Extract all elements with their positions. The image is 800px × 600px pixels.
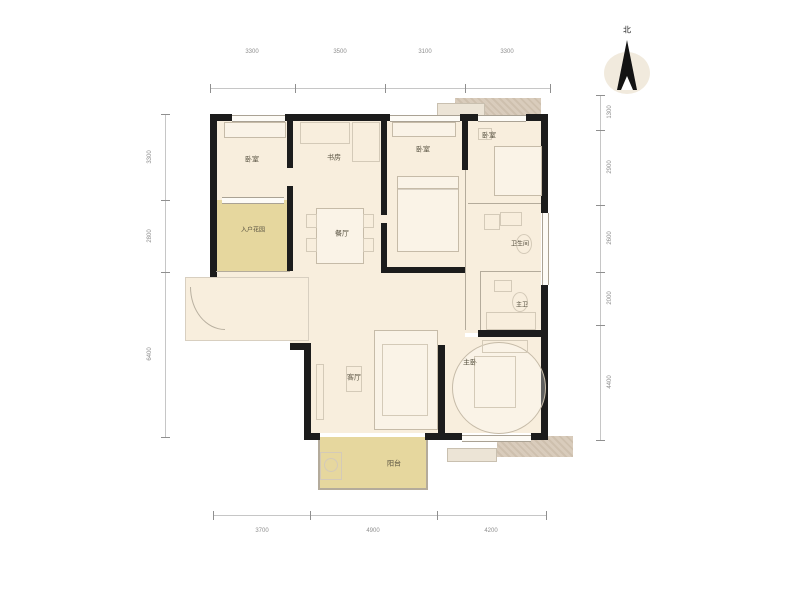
dimension-tick: [465, 84, 466, 93]
dimension-tick: [210, 84, 211, 93]
partition: [468, 203, 541, 204]
dimension-tick: [596, 272, 605, 273]
dimension-tick: [385, 84, 386, 93]
desk-icon: [352, 122, 380, 162]
partition: [465, 170, 466, 330]
wardrobe-icon: [224, 122, 286, 138]
wall-segment: [304, 433, 320, 440]
room-label-balcony: 阳台: [387, 461, 401, 468]
dimension-value: 2600: [607, 231, 613, 244]
wall-segment: [438, 345, 445, 440]
north-label: 北: [623, 25, 631, 36]
dimension-tick: [596, 325, 605, 326]
wall-segment: [285, 114, 390, 121]
partition: [480, 271, 541, 272]
room-label-bedroom: 卧室: [416, 147, 430, 154]
wall-segment: [287, 121, 293, 168]
tv-cabinet-icon: [316, 364, 324, 420]
room-label-bedroom: 卧室: [245, 157, 259, 164]
dimension-value: 2800: [147, 229, 153, 242]
dimension-line-right: [600, 95, 601, 440]
chair-icon: [363, 238, 374, 252]
dimension-tick: [596, 130, 605, 131]
north-arrow-notch: [621, 76, 633, 90]
room-label-study: 书房: [327, 155, 341, 162]
entry-garden-area: [216, 200, 290, 272]
room-label-living: 客厅: [347, 375, 361, 382]
room-label-entry-garden: 入户花园: [241, 228, 265, 235]
dimension-value: 3300: [500, 49, 513, 55]
window: [390, 115, 460, 122]
dimension-tick: [596, 95, 605, 96]
bed-icon: [494, 146, 542, 196]
room-label-master-bedroom: 主卧: [463, 360, 477, 367]
chair-icon: [306, 238, 317, 252]
window: [222, 197, 284, 204]
window: [478, 115, 526, 122]
sink-icon: [494, 280, 512, 292]
dimension-value: 4400: [607, 375, 613, 388]
dimension-tick: [310, 511, 311, 520]
wall-segment: [381, 267, 465, 273]
dimension-tick: [161, 272, 170, 273]
dimension-tick: [546, 511, 547, 520]
room-label-dining: 餐厅: [335, 231, 349, 238]
wall-segment: [462, 121, 468, 170]
dresser-icon: [482, 340, 528, 353]
wall-segment: [304, 343, 311, 440]
window: [232, 115, 285, 122]
partition: [480, 271, 481, 330]
window: [542, 213, 549, 285]
dimension-tick: [596, 205, 605, 206]
dimension-line-left: [165, 114, 166, 437]
balcony-wall: [318, 488, 428, 490]
dimension-tick: [161, 200, 170, 201]
sofa-cushions-icon: [382, 344, 428, 416]
dimension-value: 4900: [366, 528, 379, 534]
room-label-bathroom: 卫生间: [511, 242, 529, 249]
washer-drum-icon: [324, 458, 338, 472]
wall-segment: [210, 114, 217, 277]
dimension-value: 2900: [607, 160, 613, 173]
shower-icon: [484, 214, 500, 230]
bed-icon: [397, 188, 459, 252]
window: [462, 435, 531, 442]
ac-platform-bottom-small: [447, 448, 497, 462]
dimension-tick: [550, 84, 551, 93]
dimension-line-bottom: [213, 515, 546, 516]
sink-icon: [500, 212, 522, 226]
cabinet-icon: [300, 122, 350, 144]
dimension-value: 2000: [607, 291, 613, 304]
wall-segment: [381, 223, 387, 273]
bed-icon: [474, 356, 516, 408]
dimension-value: 3100: [418, 49, 431, 55]
dimension-value: 3300: [147, 150, 153, 163]
floor-plan: 卧室 入户花园 书房 餐厅 卧室 卧室 卫生间 主卫 客厅 主卧 阳台 3300…: [0, 0, 800, 600]
dimension-value: 6400: [147, 347, 153, 360]
balcony-wall: [426, 437, 428, 490]
partition: [216, 271, 290, 272]
wall-segment: [541, 285, 548, 440]
dimension-value: 4200: [484, 528, 497, 534]
dimension-tick: [437, 511, 438, 520]
room-label-master-bathroom: 主卫: [516, 303, 528, 310]
dimension-tick: [295, 84, 296, 93]
wall-segment: [478, 330, 548, 337]
wall-segment: [381, 121, 387, 215]
dimension-value: 3500: [333, 49, 346, 55]
wardrobe-icon: [392, 122, 456, 137]
chair-icon: [306, 214, 317, 228]
room-label-bedroom: 卧室: [482, 133, 496, 140]
chair-icon: [363, 214, 374, 228]
dimension-tick: [213, 511, 214, 520]
dimension-line-top: [210, 88, 550, 89]
dimension-tick: [161, 114, 170, 115]
dimension-value: 1300: [607, 105, 613, 118]
wall-segment: [287, 186, 293, 271]
wall-segment: [460, 114, 478, 121]
wall-segment: [541, 114, 548, 213]
dimension-value: 3300: [245, 49, 258, 55]
bathtub-icon: [486, 312, 536, 330]
dimension-value: 3700: [255, 528, 268, 534]
dimension-tick: [161, 437, 170, 438]
dimension-tick: [596, 440, 605, 441]
